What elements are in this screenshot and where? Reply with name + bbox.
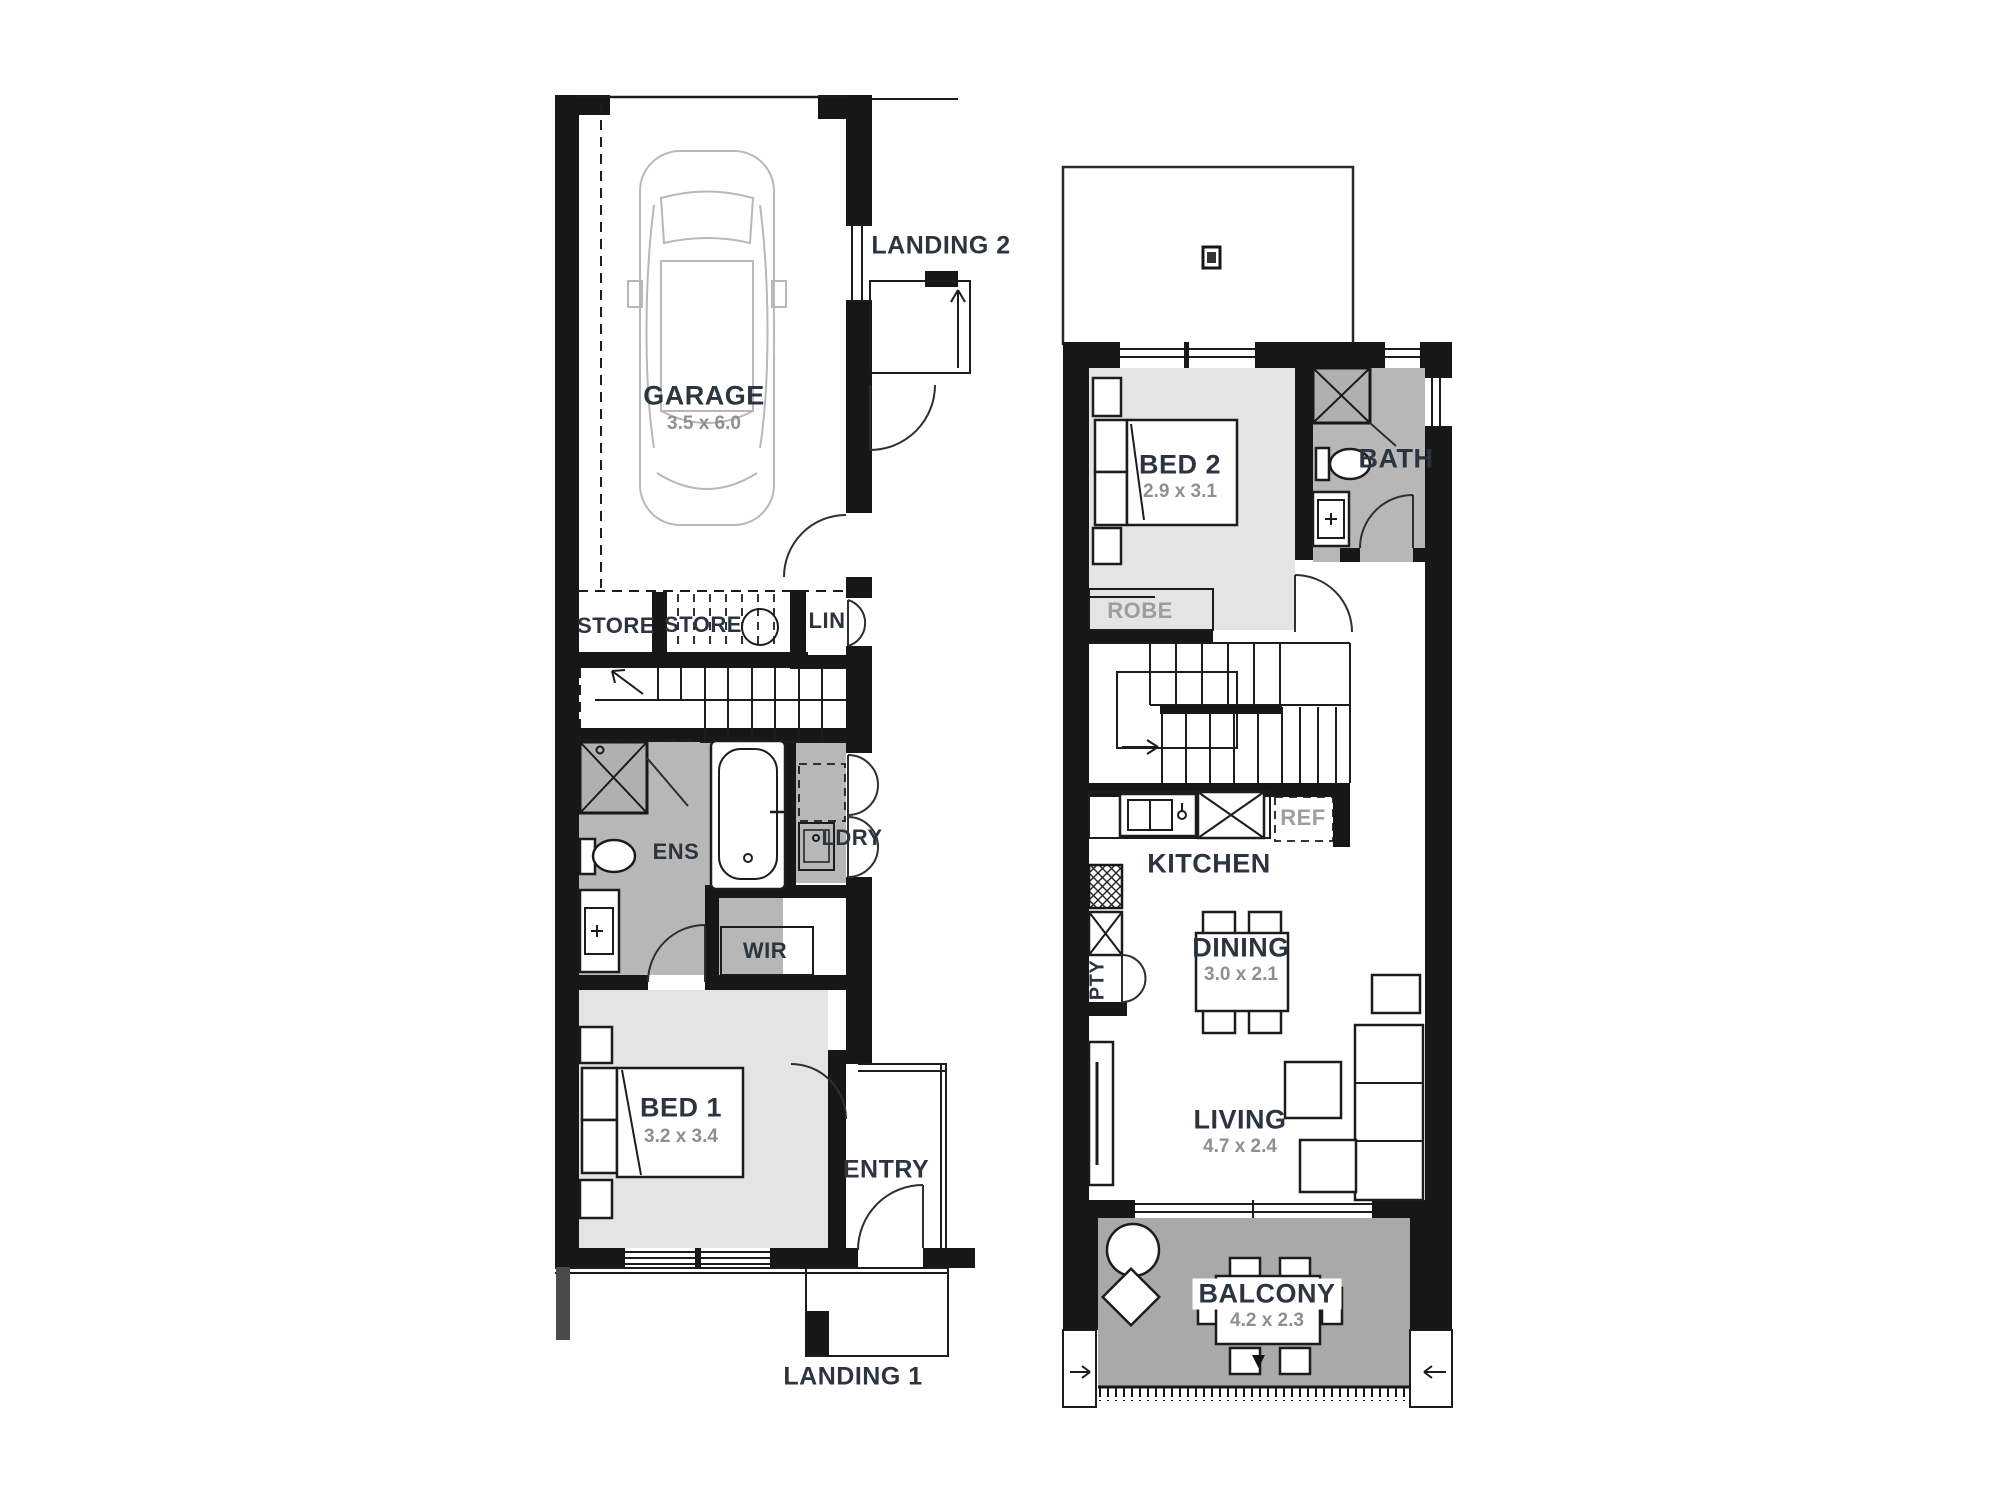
armchair-icon xyxy=(1285,1062,1341,1118)
balcony-corner-right xyxy=(1410,1330,1452,1407)
room-dim-dining: 3.0 x 2.1 xyxy=(1204,964,1278,986)
room-label-landing1: LANDING 1 xyxy=(783,1363,922,1392)
bedside-table-icon xyxy=(580,1180,612,1218)
stair-direction-arrow xyxy=(951,290,965,368)
room-label-entry: ENTRY xyxy=(843,1156,929,1185)
sink-icon xyxy=(1120,794,1196,836)
bedside-table-icon xyxy=(580,1027,612,1063)
bed2-door-arc xyxy=(1295,575,1352,632)
room-label-ens: ENS xyxy=(653,839,700,865)
gf-garage xyxy=(578,97,958,588)
room-label-robe: ROBE xyxy=(1107,598,1173,624)
bathtub-icon xyxy=(711,741,785,889)
room-label-landing2: LANDING 2 xyxy=(871,232,1010,261)
room-label-bed2: BED 2 xyxy=(1139,450,1221,481)
balustrade xyxy=(1098,1388,1410,1401)
vanity-icon xyxy=(1313,492,1349,546)
arrow-right-icon xyxy=(1070,1366,1090,1378)
room-label-bath: BATH xyxy=(1359,444,1434,475)
room-dim-bed2: 2.9 x 3.1 xyxy=(1143,481,1217,503)
bedside-table-icon xyxy=(1093,378,1121,416)
pantry-door-arc xyxy=(1122,955,1146,1002)
garage-door-arc xyxy=(784,515,846,577)
room-label-balcony: BALCONY xyxy=(1193,1279,1342,1310)
room-dim-balcony: 4.2 x 2.3 xyxy=(1224,1310,1310,1332)
room-dim-bed1: 3.2 x 3.4 xyxy=(644,1126,718,1148)
room-label-living: LIVING xyxy=(1193,1105,1286,1136)
room-label-bed1: BED 1 xyxy=(640,1093,722,1124)
gf-landing2 xyxy=(870,281,970,450)
room-label-ldry: LDRY xyxy=(821,825,882,851)
appliance-space-icon xyxy=(1089,912,1122,955)
room-label-lin: LIN xyxy=(809,608,846,634)
chair-icon xyxy=(1280,1348,1310,1374)
roof-flue-icon xyxy=(1203,247,1220,268)
room-label-ref: REF xyxy=(1280,805,1326,831)
room-dim-garage: 3.5 x 6.0 xyxy=(667,413,741,435)
room-dim-living: 4.7 x 2.4 xyxy=(1203,1136,1277,1158)
uf-roof xyxy=(1063,167,1353,344)
tv-unit-icon xyxy=(1089,1042,1113,1185)
car-icon xyxy=(628,151,786,525)
bedside-table-icon xyxy=(1093,528,1121,564)
floorplan-drawing xyxy=(0,0,2000,1500)
uf-stairs xyxy=(1089,643,1350,783)
room-label-store1: STORE xyxy=(577,613,655,639)
round-table-icon xyxy=(1107,1224,1159,1276)
balcony-corner-left xyxy=(1063,1330,1096,1407)
armchair-icon xyxy=(1372,975,1420,1013)
hot-water-unit-icon xyxy=(742,609,778,645)
landing2-door-arc xyxy=(870,385,935,450)
floorplan-page: GARAGE 3.5 x 6.0 LANDING 2 STORE STORE L… xyxy=(0,0,2000,1500)
stairs-up-arrow xyxy=(612,670,643,694)
upper-floor-plan xyxy=(1063,167,1452,1407)
vanity-icon xyxy=(580,890,619,972)
stairs-direction-arrow xyxy=(1122,740,1158,754)
room-label-kitchen: KITCHEN xyxy=(1147,849,1271,880)
room-label-garage: GARAGE xyxy=(643,381,765,412)
oven-tower-icon xyxy=(1089,865,1122,908)
room-label-wir: WIR xyxy=(743,938,787,964)
room-label-dining: DINING xyxy=(1192,933,1290,964)
toilet-icon xyxy=(580,839,635,874)
room-label-store2: STORE xyxy=(664,612,742,638)
cooktop-icon xyxy=(1198,792,1264,838)
room-label-pty: PTY xyxy=(1087,960,1110,1000)
entry-door-arc xyxy=(858,1185,923,1250)
arrow-left-icon xyxy=(1424,1366,1446,1378)
